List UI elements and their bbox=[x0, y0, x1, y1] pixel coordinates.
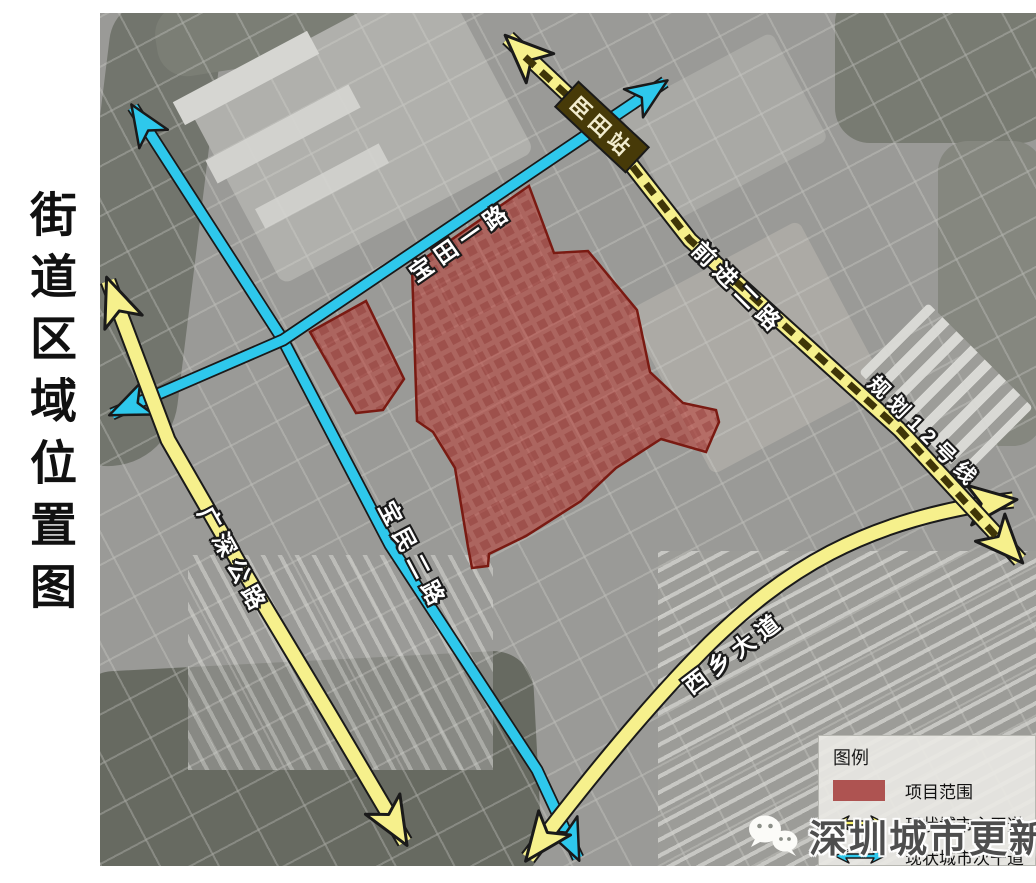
watermark: 深圳城市更新专家 bbox=[745, 808, 1036, 863]
wechat-icon bbox=[745, 812, 801, 860]
watermark-text: 深圳城市更新专家 bbox=[809, 808, 1036, 863]
legend-item-project-area: 项目范围 bbox=[833, 778, 1035, 802]
satellite-map: 臣田站 宝田一路 前进二路 规划12号线 宝民二路 广深公路 西乡大道 图例 项… bbox=[100, 13, 1036, 866]
street-district-location-figure: 街道区域位置图 bbox=[0, 0, 1036, 883]
red-area-swatch bbox=[833, 780, 885, 801]
legend-title: 图例 bbox=[833, 744, 1035, 770]
figure-title-vertical: 街道区域位置图 bbox=[24, 190, 71, 624]
